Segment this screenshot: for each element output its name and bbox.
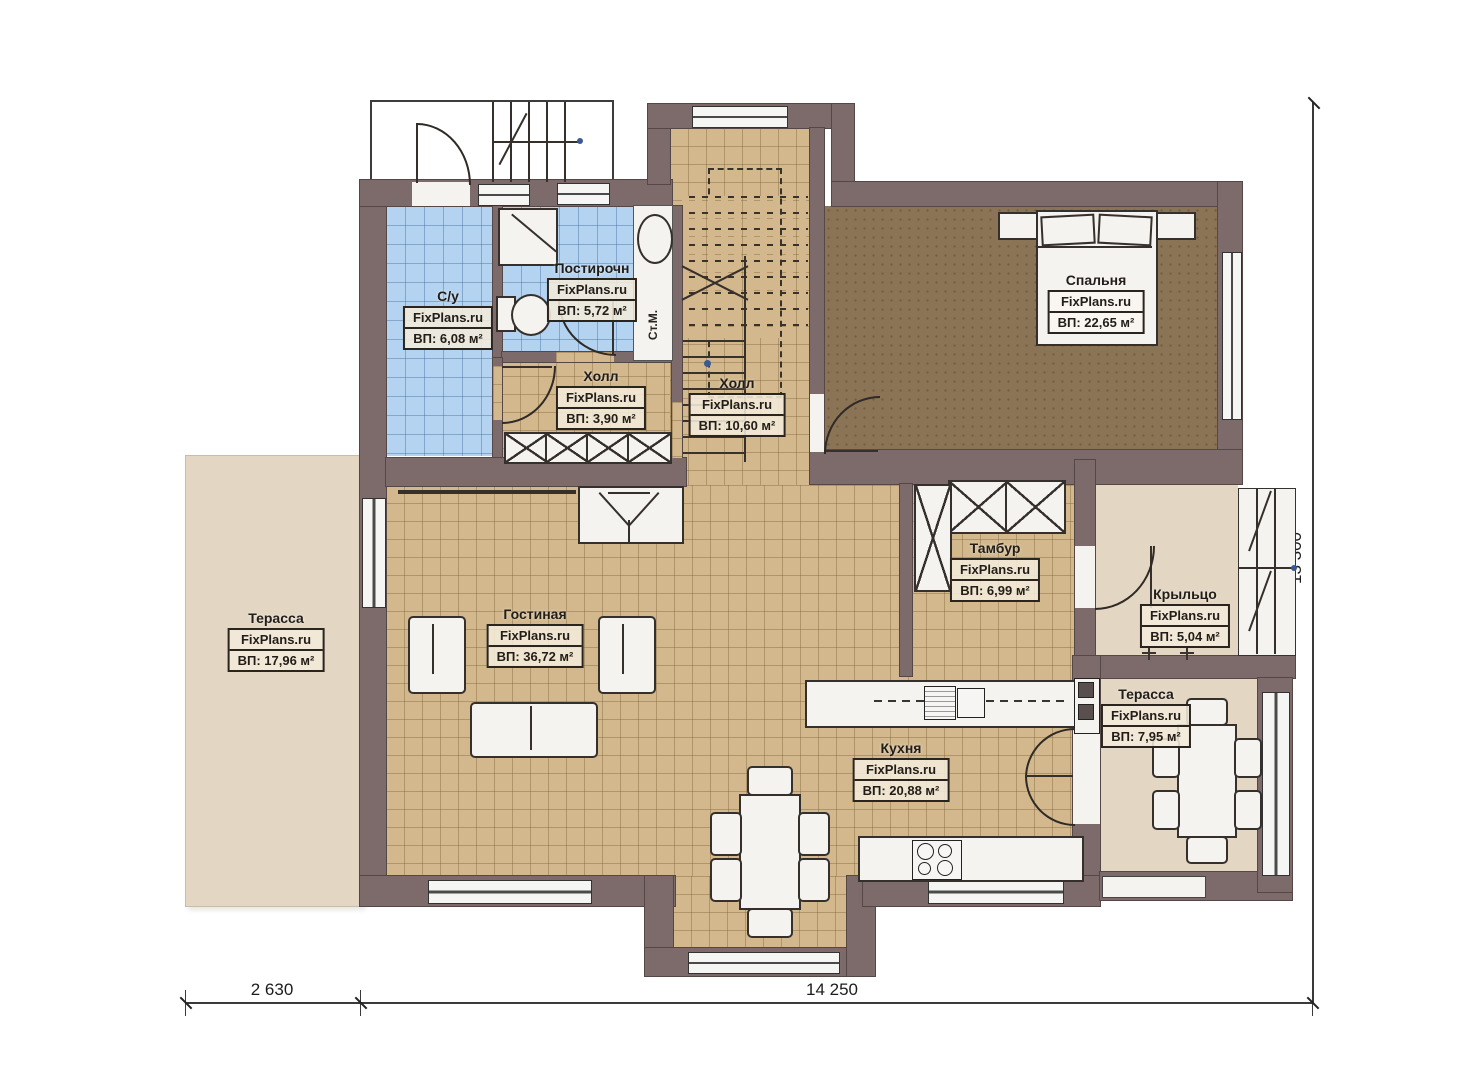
dimension-line-bottom <box>185 1002 1313 1004</box>
terrace-right-window <box>1262 692 1290 876</box>
room-info-box: FixPlans.ru ВП: 6,08 м² <box>403 306 493 350</box>
room-label-hall-stairs: Холл FixPlans.ru ВП: 10,60 м² <box>689 375 786 437</box>
room-area: ВП: 36,72 м² <box>489 647 582 666</box>
room-label-living: Гостиная FixPlans.ru ВП: 36,72 м² <box>487 606 584 668</box>
hall-wardrobe-cell <box>627 432 672 464</box>
room-area: ВП: 7,95 м² <box>1103 727 1189 746</box>
kitchen-bottom-counter <box>858 836 1084 882</box>
porch-step-line <box>1274 488 1276 654</box>
room-name: Холл <box>556 368 646 384</box>
porch-stair-mid-line <box>492 141 580 143</box>
watermark: FixPlans.ru <box>230 630 323 651</box>
watermark: FixPlans.ru <box>1103 706 1189 727</box>
room-name: С/у <box>403 288 493 304</box>
stair-newel-dot <box>704 360 711 367</box>
shower-tray <box>498 208 558 266</box>
dining-chair <box>710 812 742 856</box>
wall-bedroom-bottom <box>810 450 1242 484</box>
entrance-door-opening <box>412 182 470 206</box>
dimension-label-bottom-left: 2 630 <box>251 980 294 1000</box>
bedroom-window <box>1222 252 1242 420</box>
room-area: ВП: 6,08 м² <box>405 329 491 348</box>
dining-chair <box>710 858 742 902</box>
vestibule-window <box>478 184 530 206</box>
terrace-step <box>1102 876 1206 898</box>
terrace-door-opening <box>1073 728 1100 824</box>
room-info-box: FixPlans.ru ВП: 10,60 м² <box>689 393 786 437</box>
kitchen-sink-bowl <box>957 688 985 718</box>
room-info-box: FixPlans.ru ВП: 36,72 м² <box>487 624 584 668</box>
room-info-box: FixPlans.ru ВП: 7,95 м² <box>1101 704 1191 748</box>
room-info-box: FixPlans.ru ВП: 20,88 м² <box>853 758 950 802</box>
floor-plan-canvas: Ст.М. <box>0 0 1473 1080</box>
toilet-bowl <box>511 294 551 336</box>
room-label-bedroom: Спальня FixPlans.ru ВП: 22,65 м² <box>1048 272 1145 334</box>
room-area: ВП: 5,72 м² <box>549 301 635 320</box>
laundry-window <box>557 183 610 205</box>
porch-stair-dot <box>577 138 583 144</box>
tambour-wardrobe-cell <box>1005 480 1066 534</box>
room-area: ВП: 20,88 м² <box>855 781 948 800</box>
room-label-porch: Крыльцо FixPlans.ru ВП: 5,04 м² <box>1140 586 1230 648</box>
room-name: Спальня <box>1048 272 1145 288</box>
armchair-seat-line <box>432 624 434 674</box>
dining-table <box>739 794 801 910</box>
stove-burner <box>937 860 953 876</box>
pillow <box>1097 214 1152 247</box>
hall-wardrobe-cell <box>504 432 549 464</box>
terrace-chair <box>1186 698 1228 726</box>
blanket-line <box>1038 246 1152 248</box>
room-label-tambour: Тамбур FixPlans.ru ВП: 6,99 м² <box>950 540 1040 602</box>
armchair <box>598 616 656 694</box>
nightstand <box>1156 212 1196 240</box>
room-area: ВП: 6,99 м² <box>952 581 1038 600</box>
kitchen-sink <box>924 686 956 720</box>
armchair <box>408 616 466 694</box>
dining-chair <box>747 908 793 938</box>
wall-staircase-bay-right <box>832 104 854 184</box>
room-info-box: FixPlans.ru ВП: 5,72 м² <box>547 278 637 322</box>
room-label-laundry: Постирочн FixPlans.ru ВП: 5,72 м² <box>547 260 637 322</box>
laundry-sink <box>637 214 673 264</box>
hall-wardrobe-cell <box>586 432 631 464</box>
watermark: FixPlans.ru <box>1050 292 1143 313</box>
washing-machine-label: Ст.М. <box>646 300 660 350</box>
survey-mark <box>1180 646 1194 660</box>
room-name: Холл <box>689 375 786 391</box>
porch-steps <box>1238 488 1296 656</box>
terrace-door-leaf <box>1025 775 1073 777</box>
wall-tambour-left <box>900 484 912 676</box>
stove-burner <box>918 862 931 875</box>
armchair-seat-line <box>622 624 624 674</box>
wall-top-bedroom <box>832 182 1242 206</box>
watermark: FixPlans.ru <box>691 395 784 416</box>
room-name: Кухня <box>853 740 950 756</box>
room-name: Гостиная <box>487 606 584 622</box>
fireplace-stem <box>628 520 630 542</box>
watermark: FixPlans.ru <box>952 560 1038 581</box>
porch-step-dot <box>1291 565 1297 571</box>
room-area: ВП: 17,96 м² <box>230 651 323 670</box>
room-info-box: FixPlans.ru ВП: 17,96 м² <box>228 628 325 672</box>
sofa-cushion-line <box>530 706 532 750</box>
room-info-box: FixPlans.ru ВП: 5,04 м² <box>1140 604 1230 648</box>
room-area: ВП: 5,04 м² <box>1142 627 1228 646</box>
room-area: ВП: 10,60 м² <box>691 416 784 435</box>
dimension-line-right <box>1312 102 1314 1004</box>
fireplace-top-line <box>608 492 650 494</box>
watermark: FixPlans.ru <box>405 308 491 329</box>
room-info-box: FixPlans.ru ВП: 6,99 м² <box>950 558 1040 602</box>
porch-step-mid-line <box>1238 567 1294 569</box>
stove-burner <box>938 844 952 858</box>
oven-square <box>1078 682 1094 698</box>
watermark: FixPlans.ru <box>855 760 948 781</box>
dining-chair <box>798 812 830 856</box>
tambour-cabinet <box>914 484 952 592</box>
pillow <box>1040 214 1095 247</box>
room-label-kitchen: Кухня FixPlans.ru ВП: 20,88 м² <box>853 740 950 802</box>
living-bottom-window <box>428 880 592 904</box>
bay-window <box>688 952 840 974</box>
tambour-wardrobe-cell <box>948 480 1009 534</box>
room-label-terrace-left: Терасса FixPlans.ru ВП: 17,96 м² <box>228 610 325 672</box>
room-name: Терасса <box>1101 686 1191 702</box>
hall-passage-opening <box>672 402 682 458</box>
hall-wardrobe-cell <box>545 432 590 464</box>
room-label-terrace-right: Терасса FixPlans.ru ВП: 7,95 м² <box>1101 686 1191 748</box>
room-area: ВП: 3,90 м² <box>558 409 644 428</box>
watermark: FixPlans.ru <box>558 388 644 409</box>
room-label-bathroom: С/у FixPlans.ru ВП: 6,08 м² <box>403 288 493 350</box>
bedroom-floor <box>824 206 1218 452</box>
porch-door-opening <box>1075 546 1095 608</box>
watermark: FixPlans.ru <box>549 280 635 301</box>
dining-chair <box>798 858 830 902</box>
room-name: Постирочн <box>547 260 637 276</box>
terrace-left-floor <box>185 455 363 907</box>
room-name: Тамбур <box>950 540 1040 556</box>
dimension-label-bottom-main: 14 250 <box>806 980 858 1000</box>
dining-chair <box>747 766 793 796</box>
terrace-chair <box>1186 836 1228 864</box>
staircase-bay-window <box>692 106 788 128</box>
stove-burner <box>917 843 934 860</box>
survey-mark <box>1142 646 1156 660</box>
oven-square <box>1078 704 1094 720</box>
kitchen-window <box>928 880 1064 904</box>
room-area: ВП: 22,65 м² <box>1050 313 1143 332</box>
terrace-chair <box>1234 790 1262 830</box>
watermark: FixPlans.ru <box>1142 606 1228 627</box>
sofa <box>470 702 598 758</box>
terrace-chair <box>1234 738 1262 778</box>
room-label-hall-small: Холл FixPlans.ru ВП: 3,90 м² <box>556 368 646 430</box>
room-info-box: FixPlans.ru ВП: 3,90 м² <box>556 386 646 430</box>
bedroom-door-opening <box>810 394 824 452</box>
tv-console <box>398 490 576 494</box>
porch-step-line <box>1256 488 1258 654</box>
bathroom-door-opening <box>493 366 502 420</box>
room-name: Терасса <box>228 610 325 626</box>
watermark: FixPlans.ru <box>489 626 582 647</box>
living-left-window <box>362 498 386 608</box>
fireplace <box>578 486 684 544</box>
room-info-box: FixPlans.ru ВП: 22,65 м² <box>1048 290 1145 334</box>
terrace-chair <box>1152 790 1180 830</box>
dimension-tick <box>1308 97 1321 110</box>
room-name: Крыльцо <box>1140 586 1230 602</box>
nightstand <box>998 212 1038 240</box>
